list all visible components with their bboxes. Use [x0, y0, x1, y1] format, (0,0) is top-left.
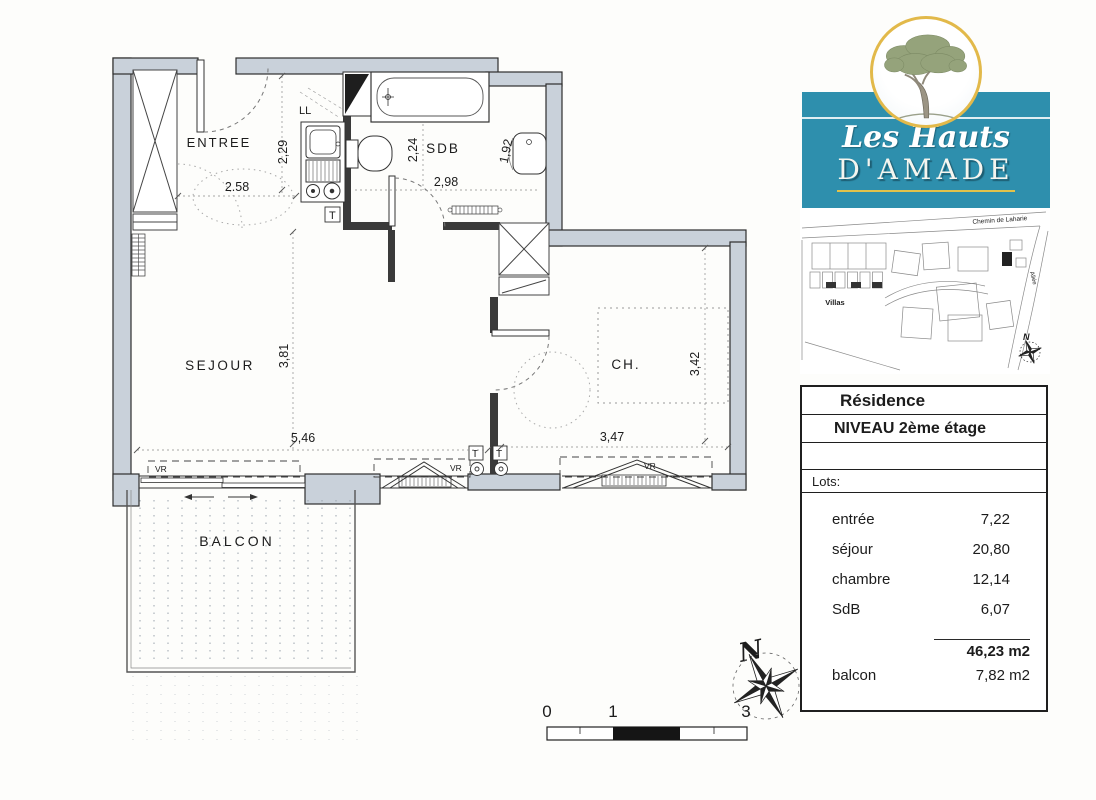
lot-value: 7,22 [981, 505, 1010, 535]
outer-walls [113, 58, 746, 506]
room-label-balcon: BALCON [199, 533, 275, 549]
lot-label: séjour [832, 535, 873, 565]
balcony [127, 490, 357, 744]
logo-tree-medallion [870, 16, 982, 128]
north-label: N [735, 634, 767, 669]
map-road-label: Chemin de Laharie [972, 215, 1028, 226]
bathtub [371, 72, 489, 122]
toilet [346, 136, 392, 171]
svg-text:2,98: 2,98 [434, 175, 458, 189]
room-label-sejour: SEJOUR [185, 358, 255, 373]
lot-label: entrée [832, 505, 875, 535]
map-compass: N [1015, 332, 1046, 367]
chambre-closet [499, 223, 549, 295]
electrical-symbols [325, 207, 508, 476]
lot-value: 12,14 [972, 565, 1010, 595]
tableau-label: T [496, 449, 502, 460]
site-map: Chemin de Laharie Allée Villas N [800, 208, 1050, 374]
logo: Les Hauts D'AMADE [802, 12, 1050, 212]
tableau-label: T [472, 449, 478, 460]
lot-value: 20,80 [972, 535, 1010, 565]
lot-row: séjour20,80 [802, 535, 1046, 565]
room-label-chambre: CH. [611, 357, 640, 372]
svg-text:3,81: 3,81 [277, 344, 291, 368]
svg-text:2.58: 2.58 [225, 180, 249, 194]
lot-row: SdB6,07 [802, 595, 1046, 625]
total-row: 46,23 m2 [802, 640, 1046, 664]
lot-value: 6,07 [981, 595, 1010, 625]
room-label-entree: ENTREE [187, 135, 252, 150]
map-villas-label: Villas [825, 298, 844, 307]
table-lots-header: Lots: [802, 470, 1046, 493]
balcony-value: 7,82 m2 [976, 664, 1030, 688]
dimension-ticks [134, 73, 731, 453]
scale-bar: 0 1 3 [542, 702, 750, 740]
shutter-label: VR [450, 463, 462, 473]
svg-text:3: 3 [741, 702, 750, 721]
svg-text:3,47: 3,47 [600, 430, 624, 444]
info-table: Résidence NIVEAU 2ème étage Lots: entrée… [800, 385, 1048, 712]
table-empty-row [802, 443, 1046, 470]
dimension-labels: 2.58 2,29 2,24 2,98 1,92 3,81 5,46 3,47 … [225, 138, 702, 445]
svg-text:0: 0 [542, 702, 551, 721]
tableau-label: T [329, 210, 336, 222]
entree-closet [133, 70, 177, 230]
lot-label: chambre [832, 565, 890, 595]
olive-tree-icon [873, 19, 979, 125]
balcony-label: balcon [832, 664, 876, 688]
lot-row: chambre12,14 [802, 565, 1046, 595]
chambre-window [560, 457, 712, 488]
duct-shaft [343, 72, 371, 116]
logo-title-caps: D'AMADE [802, 153, 1050, 186]
washer-label: LL [299, 105, 311, 117]
table-level: NIVEAU 2ème étage [802, 415, 1046, 443]
scanned-floor-plan-page: T T T ENTREE SEJOUR SDB CH. BALCON 2.58 … [0, 0, 1096, 800]
total-value: 46,23 m2 [967, 640, 1030, 664]
balcony-row: balcon 7,82 m2 [802, 664, 1046, 688]
shutter-label: VR [644, 461, 656, 471]
svg-text:2,29: 2,29 [276, 140, 290, 164]
lot-label: SdB [832, 595, 860, 625]
radiator-sdb [448, 206, 502, 214]
table-title: Résidence [802, 387, 1046, 415]
lots-list: entrée7,22séjour20,80chambre12,14SdB6,07 [802, 493, 1046, 625]
svg-text:N: N [1023, 332, 1030, 342]
map-allee-label: Allée [1028, 271, 1037, 286]
logo-underline [837, 190, 1016, 192]
shutter-label: VR [155, 464, 167, 474]
svg-text:5,46: 5,46 [291, 431, 315, 445]
washbasin [509, 133, 546, 174]
svg-text:3,42: 3,42 [688, 352, 702, 376]
svg-text:1: 1 [608, 702, 617, 721]
dimension-lines [137, 76, 728, 450]
dotted-hints [178, 164, 728, 428]
lot-row: entrée7,22 [802, 505, 1046, 535]
radiator-sejour [132, 234, 145, 276]
svg-text:2,24: 2,24 [406, 138, 420, 162]
room-label-sdb: SDB [426, 141, 460, 156]
